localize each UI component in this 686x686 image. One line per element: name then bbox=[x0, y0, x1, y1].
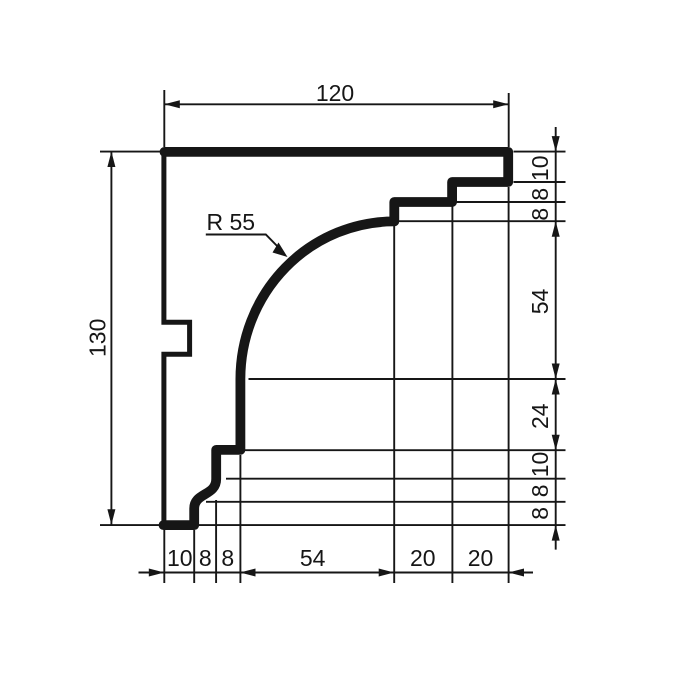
svg-text:R 55: R 55 bbox=[207, 209, 256, 235]
svg-text:8: 8 bbox=[527, 188, 553, 201]
svg-text:54: 54 bbox=[527, 289, 553, 315]
svg-text:20: 20 bbox=[468, 545, 494, 571]
svg-text:8: 8 bbox=[199, 545, 212, 571]
svg-text:130: 130 bbox=[85, 319, 111, 357]
svg-text:8: 8 bbox=[527, 208, 553, 221]
svg-text:8: 8 bbox=[527, 484, 553, 497]
svg-text:8: 8 bbox=[527, 507, 553, 520]
svg-text:54: 54 bbox=[300, 545, 326, 571]
svg-text:8: 8 bbox=[221, 545, 234, 571]
svg-text:24: 24 bbox=[527, 403, 553, 429]
svg-text:10: 10 bbox=[527, 156, 553, 182]
svg-text:120: 120 bbox=[316, 80, 354, 106]
svg-text:20: 20 bbox=[410, 545, 436, 571]
svg-text:10: 10 bbox=[527, 452, 553, 478]
svg-text:10: 10 bbox=[167, 545, 193, 571]
